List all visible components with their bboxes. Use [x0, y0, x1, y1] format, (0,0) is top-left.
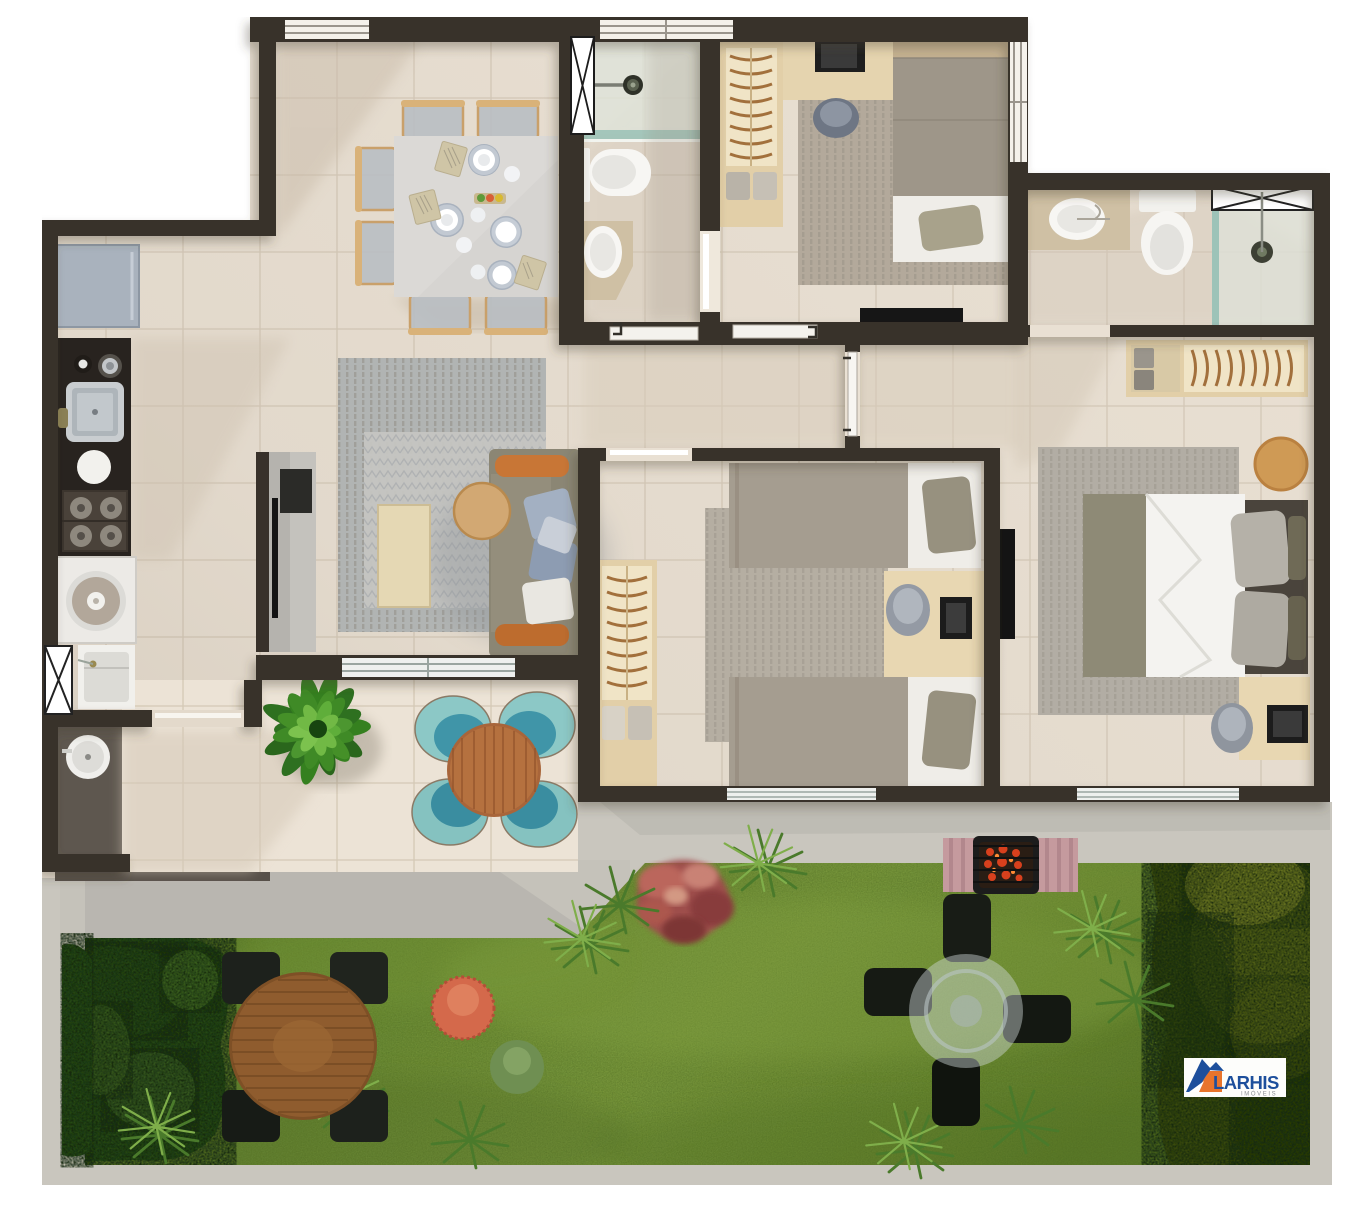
svg-text:IMÓVEIS: IMÓVEIS [1241, 1091, 1277, 1098]
svg-text:LARHIS: LARHIS [1213, 1072, 1279, 1093]
